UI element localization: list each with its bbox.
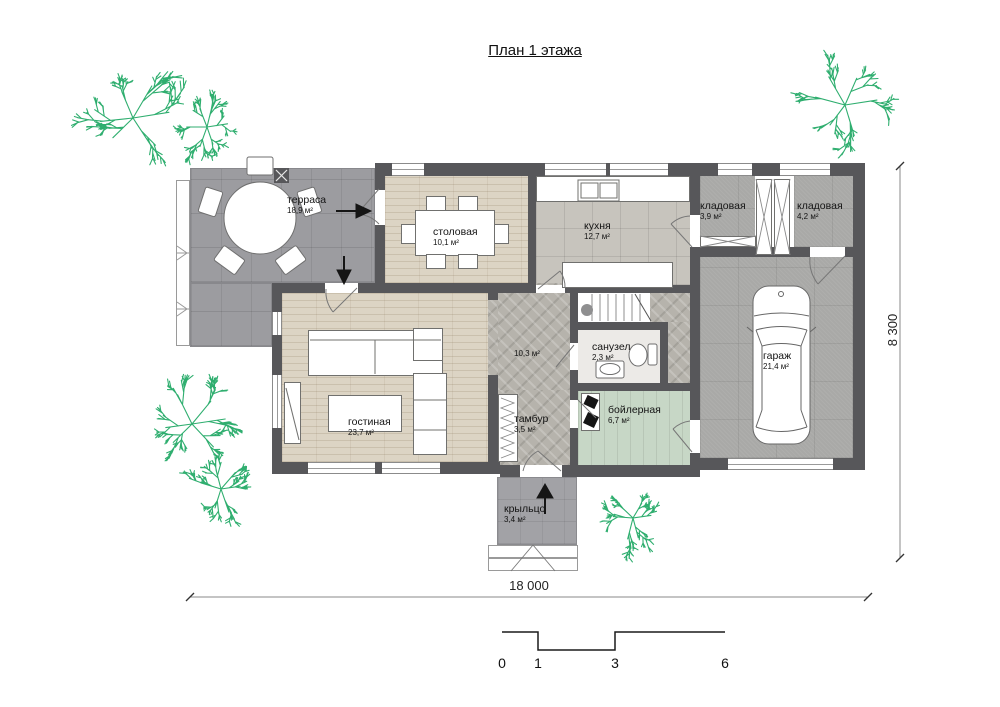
room-floor-terrace [190,168,375,283]
door-opening [570,400,578,428]
wall [500,465,520,477]
scale-label-1: 1 [531,655,545,671]
cabinet [413,373,447,455]
window [545,163,606,176]
wall [570,370,578,383]
scale-label-0: 0 [495,655,509,671]
wall [570,383,690,391]
room-label-bathroom: санузел 2,3 м² [592,341,630,362]
window [392,163,424,176]
room-label-storage-1: кладовая 3,9 м² [700,200,746,221]
room-label-boiler: бойлерная 6,7 м² [608,404,661,425]
wall [488,375,498,470]
window [610,163,668,176]
wall [375,225,385,290]
door-opening [570,343,578,370]
plan-title: План 1 этажа [410,42,660,59]
room-label-tambour: тамбур 3,5 м² [514,413,548,434]
room-label-terrace: терраса 18,9 м² [287,194,326,215]
garage-door [728,458,833,470]
chair [458,254,478,269]
room-label-garage: гараж 21,4 м² [763,350,791,371]
chair [494,224,509,244]
room-label-kitchen: кухня 12,7 м² [584,220,611,241]
wall [272,283,325,293]
wall [375,163,392,176]
wall [578,322,668,330]
wall [752,163,780,176]
room-label-storage-2: кладовая 4,2 м² [797,200,843,221]
terrace-edge-strip [176,180,190,346]
window [780,163,830,176]
stairs-floor [578,293,650,322]
wall [690,453,700,477]
door-opening [690,420,700,453]
floorplan-canvas: План 1 этажа терраса 18,9 м² столовая 10… [0,0,1000,707]
wall [488,283,498,300]
scale-label-3: 3 [608,655,622,671]
room-label-porch: крыльцо 3,4 м² [504,503,545,524]
window [272,312,282,335]
storage-rack [774,179,790,255]
wall [700,247,810,257]
armchair [413,328,443,361]
room-label-living: гостиная 23,7 м² [348,416,391,437]
porch-step [488,545,578,558]
door-opening [536,285,565,293]
wall [528,176,536,283]
wall [570,428,578,465]
door-opening-entrance [520,465,562,477]
hall-floor-right [650,293,690,322]
wall [570,293,578,343]
wall [570,391,578,400]
wall [272,428,282,470]
wall [358,283,375,293]
hall-floor-right-lower [668,322,690,383]
dimension-height: 8 300 [885,300,901,360]
wall [833,458,853,470]
wall [375,462,382,474]
wall [690,176,700,215]
wall [853,163,865,470]
window [272,375,282,428]
window [382,462,440,474]
tv-unit [284,382,301,444]
chair [426,196,446,211]
wall [375,283,536,293]
wall [668,163,718,176]
kitchen-counter-top [536,176,690,202]
wall [272,335,282,375]
dimension-width: 18 000 [469,578,589,593]
wall [700,458,728,470]
storage-rack [756,179,772,255]
chair [426,254,446,269]
room-floor-terrace-side [190,283,272,347]
window [718,163,752,176]
storage-rack [700,236,756,247]
door-opening [325,283,358,293]
room-label-hall: 10,3 м² [514,349,540,358]
chair [458,196,478,211]
scale-label-6: 6 [718,655,732,671]
porch-step [488,558,578,571]
wall [424,163,545,176]
scale-bar-line [502,632,725,650]
kitchen-counter-bottom [562,262,673,288]
door-opening [690,215,700,247]
wall [845,247,853,257]
wall [690,247,700,420]
column-marker [274,168,289,183]
wall [660,322,668,383]
door-opening [810,247,845,257]
wall [375,176,385,190]
door-opening [375,190,385,225]
hall-living-opening [488,300,498,375]
chair [401,224,416,244]
room-floor-hall [498,283,570,390]
wall [562,465,690,477]
room-label-dining: столовая 10,1 м² [433,226,478,247]
window [308,462,375,474]
boiler-unit-box [581,393,600,431]
